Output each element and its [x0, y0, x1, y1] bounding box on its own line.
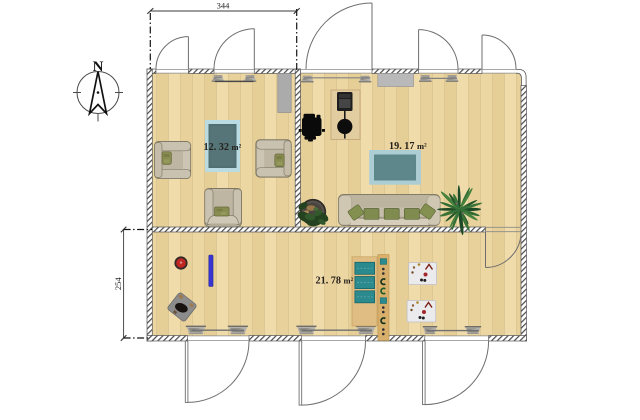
svg-text:254: 254 — [113, 277, 123, 291]
svg-text:12. 32 m²: 12. 32 m² — [204, 142, 242, 153]
svg-text:21. 78 m²: 21. 78 m² — [316, 276, 354, 287]
svg-text:19. 17 m²: 19. 17 m² — [389, 141, 427, 152]
svg-text:344: 344 — [217, 1, 231, 11]
svg-text:N: N — [93, 59, 104, 75]
